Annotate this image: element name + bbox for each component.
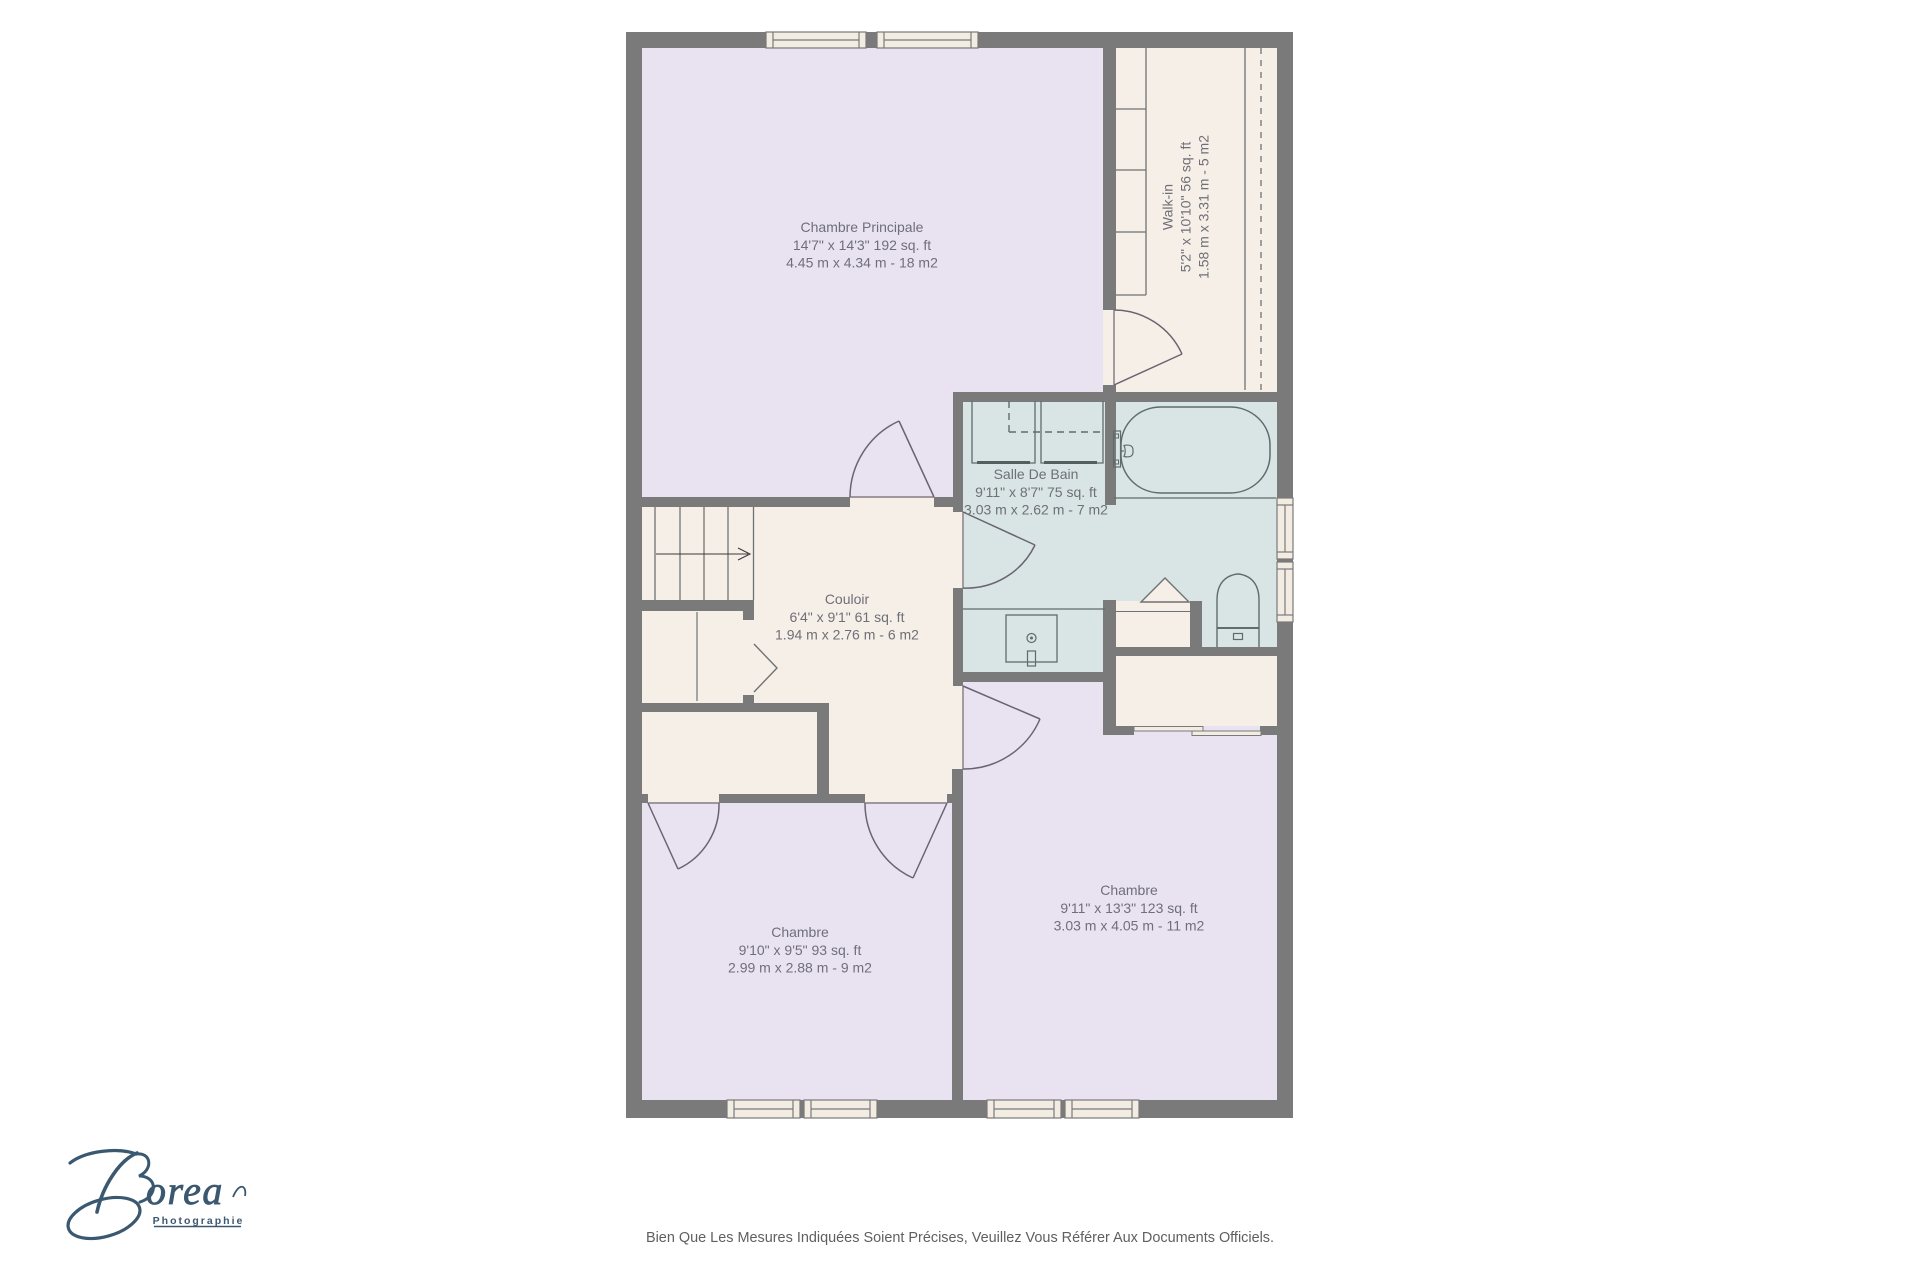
svg-text:Chambre: Chambre	[771, 924, 829, 940]
svg-text:9'11" x 8'7" 75 sq. ft: 9'11" x 8'7" 75 sq. ft	[975, 484, 1097, 500]
svg-text:4.45 m x 4.34 m - 18 m2: 4.45 m x 4.34 m - 18 m2	[786, 255, 938, 271]
svg-text:Chambre: Chambre	[1100, 882, 1158, 898]
svg-text:1.94 m x 2.76 m - 6 m2: 1.94 m x 2.76 m - 6 m2	[775, 627, 919, 643]
svg-text:9'10" x 9'5" 93 sq. ft: 9'10" x 9'5" 93 sq. ft	[739, 942, 862, 958]
svg-text:Chambre Principale: Chambre Principale	[801, 219, 924, 235]
svg-text:orea: orea	[146, 1168, 224, 1213]
svg-text:Bien Que Les Mesures Indiquées: Bien Que Les Mesures Indiquées Soient Pr…	[646, 1230, 1274, 1246]
svg-text:Walk-in: Walk-in	[1160, 184, 1176, 230]
svg-text:6'4" x 9'1" 61 sq. ft: 6'4" x 9'1" 61 sq. ft	[790, 609, 905, 625]
svg-text:1.58 m x 3.31 m - 5 m2: 1.58 m x 3.31 m - 5 m2	[1195, 135, 1211, 279]
svg-text:9'11" x 13'3" 123 sq. ft: 9'11" x 13'3" 123 sq. ft	[1060, 900, 1197, 916]
svg-text:5'2" x 10'10" 56 sq. ft: 5'2" x 10'10" 56 sq. ft	[1178, 142, 1194, 273]
svg-text:14'7" x 14'3" 192 sq. ft: 14'7" x 14'3" 192 sq. ft	[793, 237, 931, 253]
svg-text:3.03 m x 2.62 m - 7 m2: 3.03 m x 2.62 m - 7 m2	[964, 502, 1108, 518]
svg-text:Couloir: Couloir	[825, 591, 870, 607]
svg-text:Photographie: Photographie	[153, 1215, 245, 1227]
svg-text:Salle De Bain: Salle De Bain	[994, 466, 1079, 482]
svg-text:3.03 m x 4.05 m - 11 m2: 3.03 m x 4.05 m - 11 m2	[1054, 918, 1205, 934]
svg-text:2.99 m x 2.88 m - 9 m2: 2.99 m x 2.88 m - 9 m2	[728, 960, 872, 976]
